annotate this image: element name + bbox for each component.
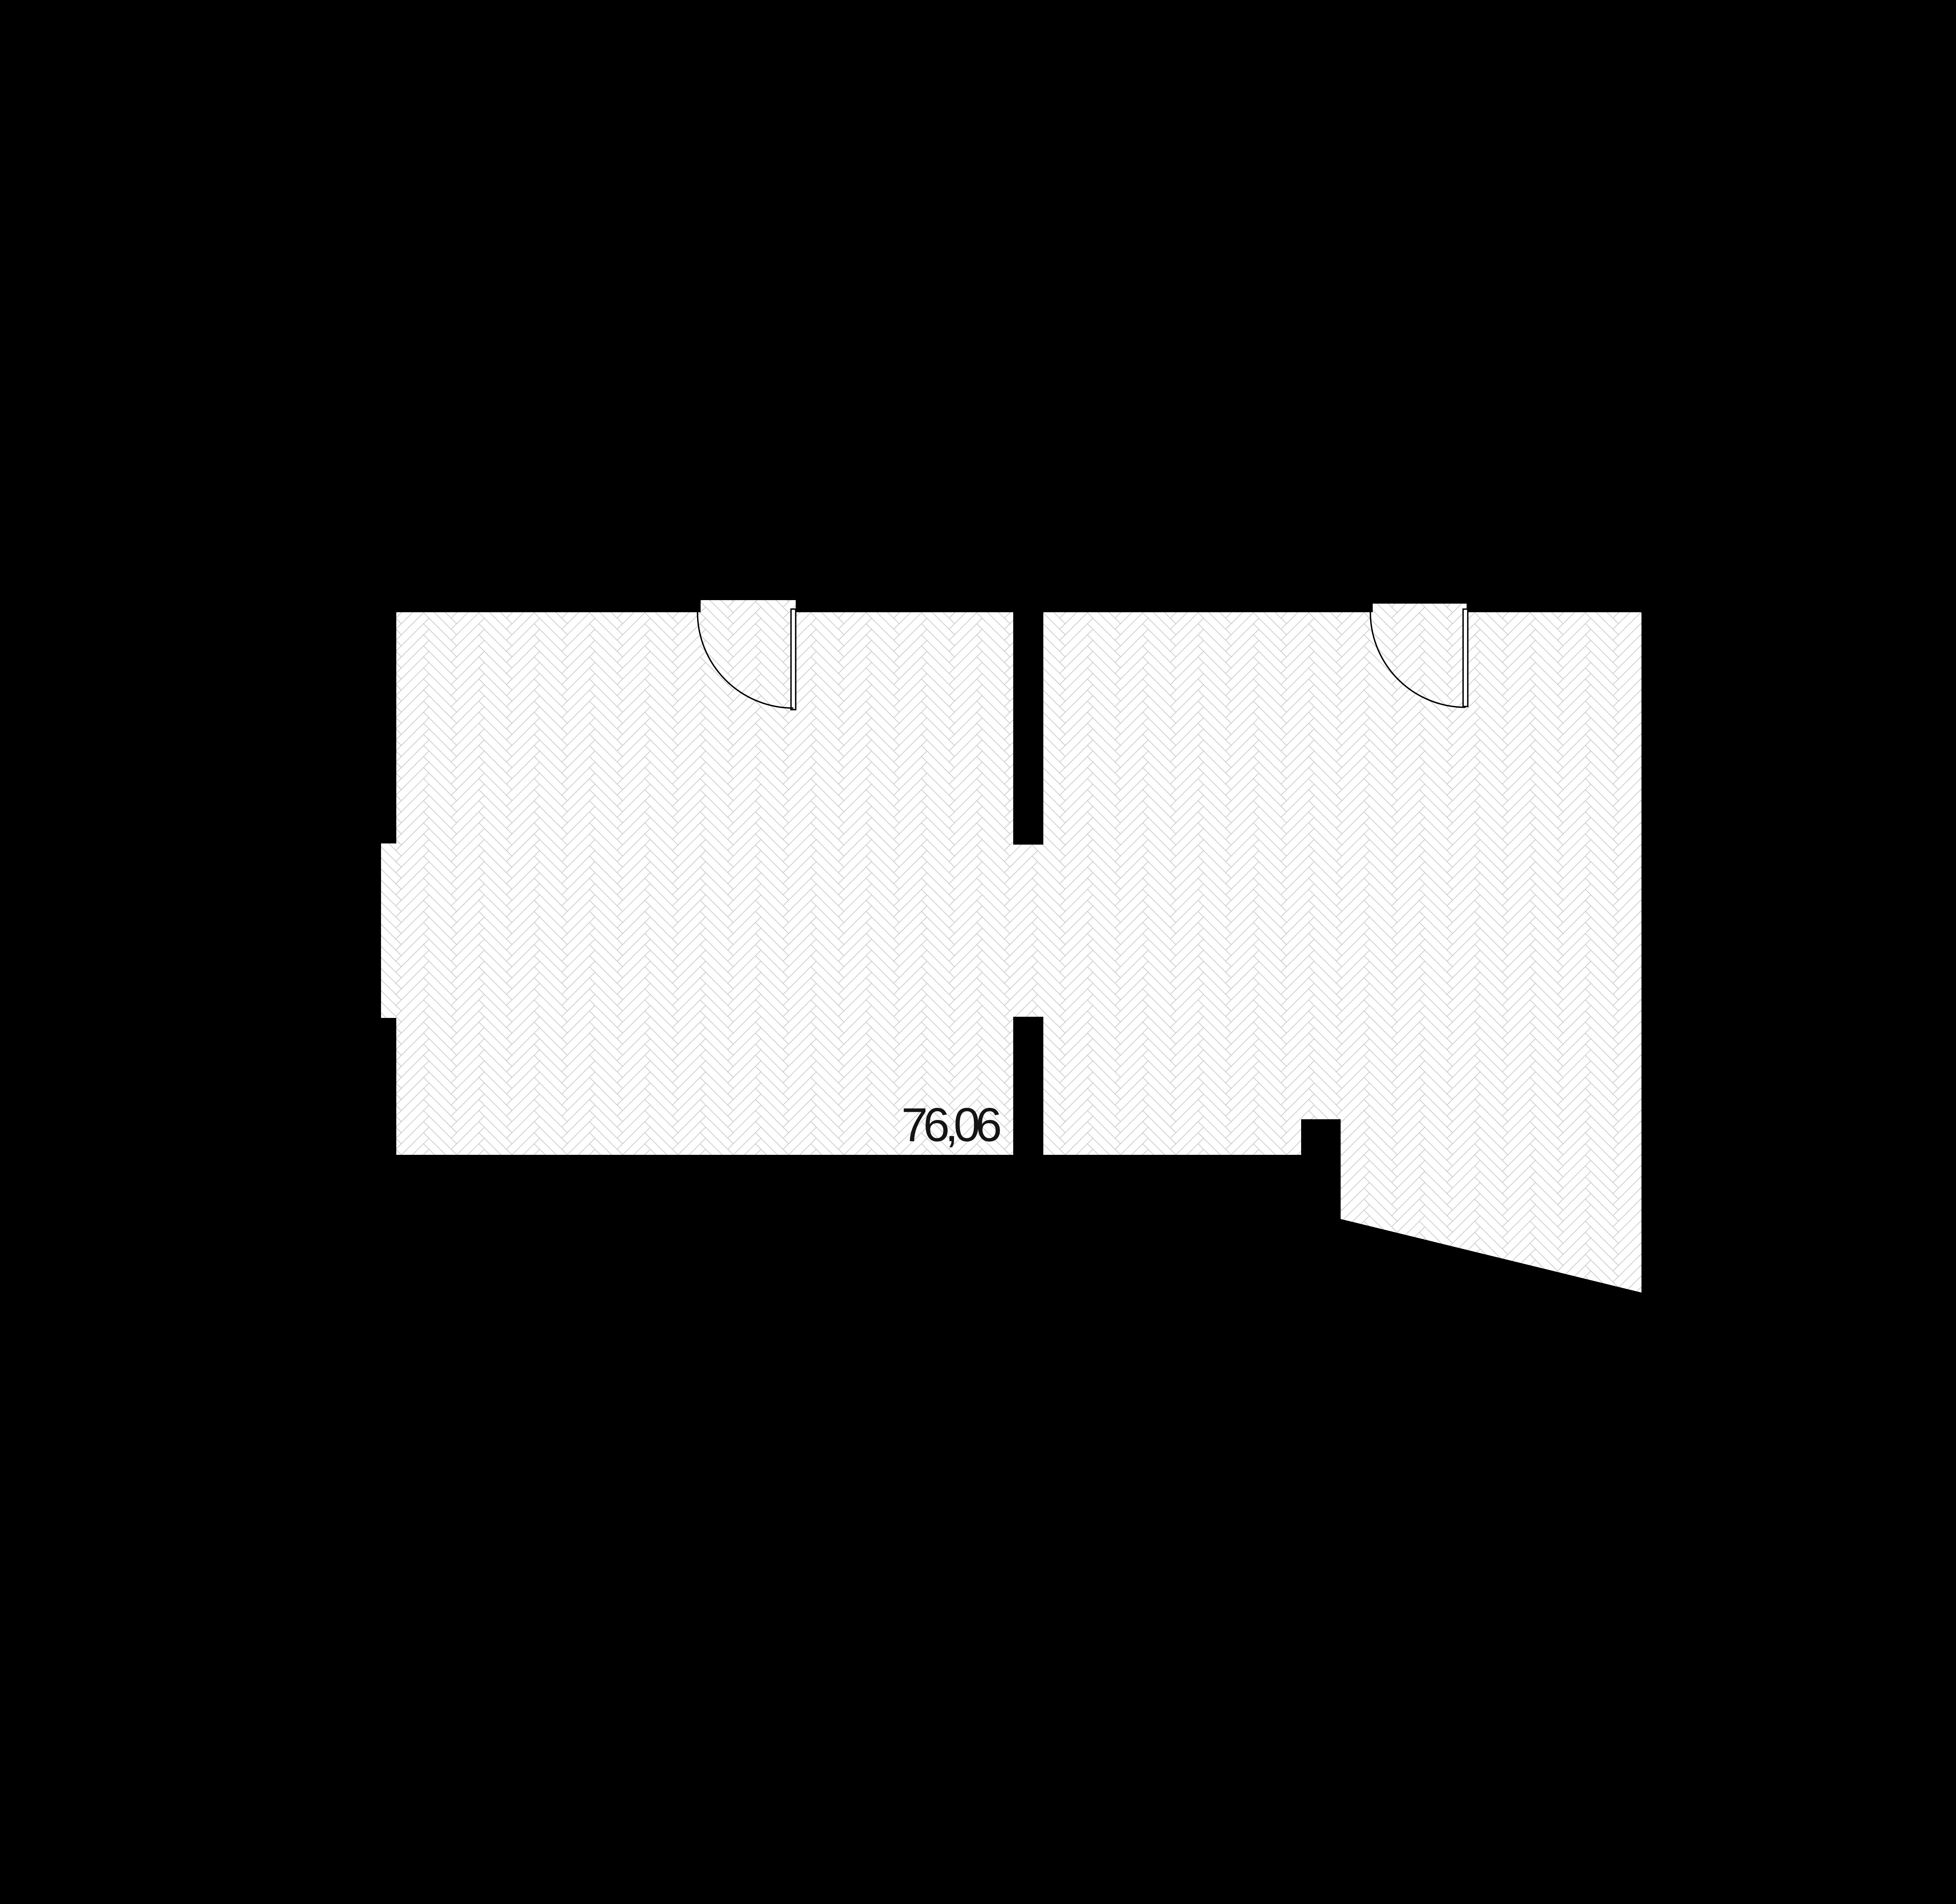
svg-text:76,06: 76,06 <box>901 1098 1000 1151</box>
